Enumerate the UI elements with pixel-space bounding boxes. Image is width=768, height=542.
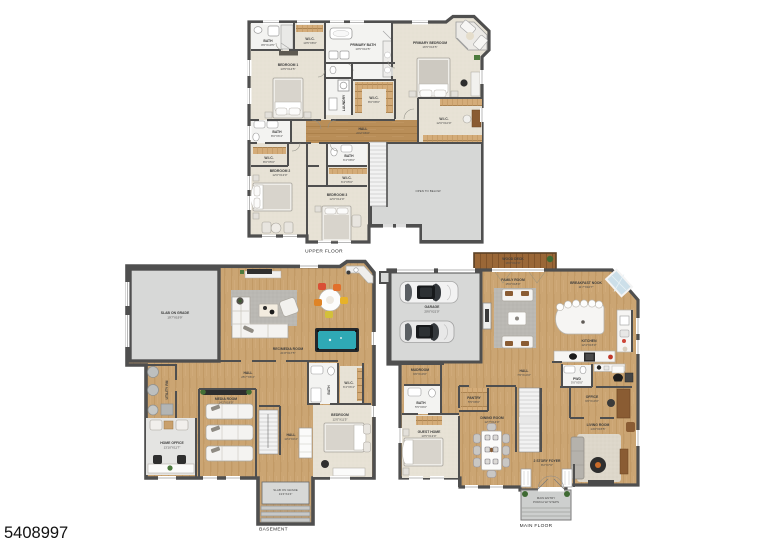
svg-text:19'7"X19'9": 19'7"X19'9" bbox=[167, 316, 182, 320]
svg-text:BASEMENT: BASEMENT bbox=[259, 526, 288, 532]
svg-text:12'0"X13'0": 12'0"X13'0" bbox=[272, 173, 287, 177]
svg-text:8'0"X5'0": 8'0"X5'0" bbox=[263, 160, 275, 164]
svg-text:25'7"X6'4": 25'7"X6'4" bbox=[241, 375, 255, 379]
svg-text:8'0"X10'5": 8'0"X10'5" bbox=[261, 43, 275, 47]
svg-text:UPPER FLOOR: UPPER FLOOR bbox=[305, 249, 343, 255]
svg-text:20'0"X21'0": 20'0"X21'0" bbox=[424, 310, 439, 314]
svg-text:OPEN TO BELOW: OPEN TO BELOW bbox=[415, 189, 440, 193]
svg-text:6'4"X6'4": 6'4"X6'4" bbox=[343, 385, 355, 389]
svg-text:10'5"X8'0": 10'5"X8'0" bbox=[303, 41, 317, 45]
svg-text:UTILITY RM: UTILITY RM bbox=[165, 380, 169, 399]
svg-text:15'0"X18'0": 15'0"X18'0" bbox=[505, 282, 520, 286]
svg-text:SLAB ON GRADE: SLAB ON GRADE bbox=[161, 311, 190, 315]
svg-text:BEDROOM: BEDROOM bbox=[331, 413, 349, 417]
svg-text:5'0"X5'0": 5'0"X5'0" bbox=[571, 381, 583, 385]
svg-text:7'0"X14'0": 7'0"X14'0" bbox=[517, 373, 531, 377]
svg-text:8'2"X7'0": 8'2"X7'0" bbox=[541, 463, 553, 467]
svg-text:10'5"X13'0": 10'5"X13'0" bbox=[421, 434, 436, 438]
svg-text:6'4"X5'0": 6'4"X5'0" bbox=[341, 180, 353, 184]
svg-text:5408997: 5408997 bbox=[4, 524, 68, 542]
svg-text:BATH: BATH bbox=[327, 385, 331, 395]
svg-text:13'4"X4'4": 13'4"X4'4" bbox=[284, 437, 298, 441]
svg-text:LAUNDRY: LAUNDRY bbox=[342, 94, 346, 111]
svg-text:10'5"X10'5": 10'5"X10'5" bbox=[355, 47, 370, 51]
svg-text:12'0"X11'5": 12'0"X11'5" bbox=[332, 418, 347, 422]
svg-text:12'4"X15'0": 12'4"X15'0" bbox=[581, 343, 596, 347]
svg-text:16'5"X16'5": 16'5"X16'5" bbox=[422, 45, 437, 49]
svg-text:GARAGE: GARAGE bbox=[425, 305, 441, 309]
svg-text:24'2"X6'0": 24'2"X6'0" bbox=[356, 131, 370, 135]
svg-text:5'5"X9'0": 5'5"X9'0" bbox=[415, 405, 427, 409]
svg-text:13'4"X4'4": 13'4"X4'4" bbox=[279, 492, 293, 496]
svg-text:21'8"X17'5": 21'8"X17'5" bbox=[280, 351, 295, 355]
svg-text:12'0"X10'0": 12'0"X10'0" bbox=[436, 121, 451, 125]
svg-text:PORCH W/ STEPS: PORCH W/ STEPS bbox=[533, 500, 559, 504]
svg-text:8'0"X8'0": 8'0"X8'0" bbox=[368, 100, 380, 104]
svg-text:12'0"X12'0": 12'0"X12'0" bbox=[329, 197, 344, 201]
svg-text:14'0"X15'5": 14'0"X15'5" bbox=[590, 427, 605, 431]
svg-text:16'0"X10'0": 16'0"X10'0" bbox=[505, 261, 520, 265]
svg-text:11'7"X10'7": 11'7"X10'7" bbox=[578, 285, 593, 289]
svg-text:6'0"X10'0": 6'0"X10'0" bbox=[413, 372, 427, 376]
svg-text:6'4"X8'0": 6'4"X8'0" bbox=[343, 158, 355, 162]
svg-text:6'0"X10'0": 6'0"X10'0" bbox=[585, 399, 599, 403]
svg-text:HOME OFFICE: HOME OFFICE bbox=[160, 441, 184, 445]
svg-text:5'5"X8'0": 5'5"X8'0" bbox=[468, 400, 480, 404]
svg-text:MAIN FLOOR: MAIN FLOOR bbox=[520, 523, 553, 529]
svg-text:8'0"X6'4": 8'0"X6'4" bbox=[271, 134, 283, 138]
svg-text:13'5"X14'5": 13'5"X14'5" bbox=[280, 67, 295, 71]
svg-text:13'10"X11'7": 13'10"X11'7" bbox=[164, 446, 181, 450]
